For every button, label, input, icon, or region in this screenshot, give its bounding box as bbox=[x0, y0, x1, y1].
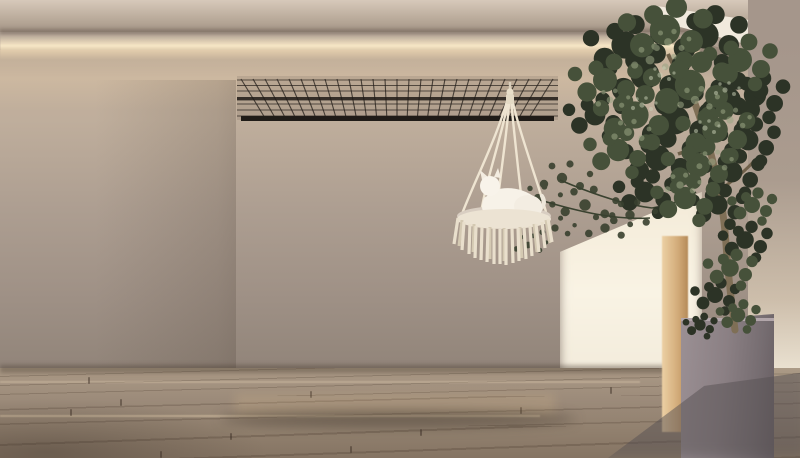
food-bowl bbox=[284, 368, 320, 386]
floor-plank-seam bbox=[420, 429, 422, 436]
scene-room bbox=[0, 0, 800, 458]
center-shelf bbox=[348, 227, 450, 238]
frame-top-rail bbox=[227, 70, 570, 80]
frame-post-left bbox=[227, 70, 238, 416]
food-bowl bbox=[247, 370, 281, 387]
frame-mullion-right bbox=[449, 76, 458, 408]
floor-highlight-line bbox=[0, 381, 640, 383]
floor-plank-seam bbox=[350, 446, 352, 453]
wall-shadow-left-of-cage bbox=[0, 80, 236, 380]
hanging-cat-bed bbox=[440, 82, 570, 282]
frame-mullion-left bbox=[341, 76, 350, 408]
frame-bottom-rail bbox=[227, 404, 570, 416]
shelf-under-left-house bbox=[239, 177, 347, 185]
frame-post-right bbox=[556, 70, 570, 416]
floor-plank-seam bbox=[88, 377, 90, 384]
floor-plank-seam bbox=[610, 387, 612, 394]
